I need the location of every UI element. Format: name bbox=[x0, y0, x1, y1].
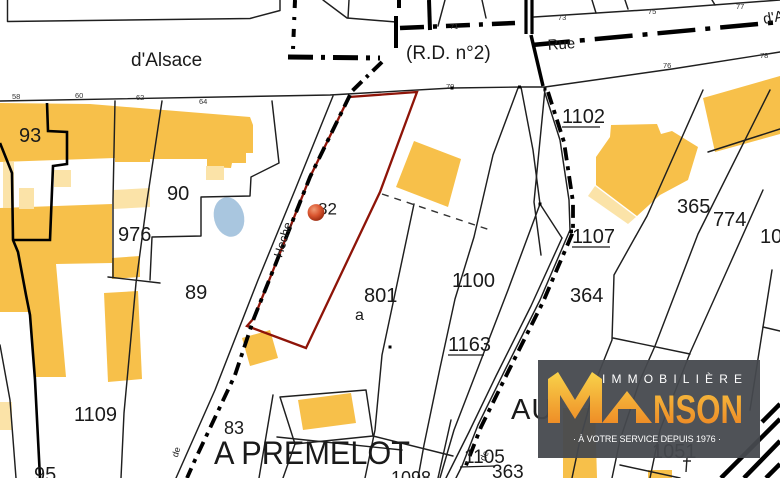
svg-text:1100: 1100 bbox=[452, 270, 495, 292]
svg-text:1107: 1107 bbox=[572, 226, 615, 248]
svg-text:· À VOTRE SERVICE DEPUIS 1976: · À VOTRE SERVICE DEPUIS 1976 · bbox=[573, 434, 721, 444]
svg-text:76: 76 bbox=[663, 61, 671, 70]
svg-text:(R.D. n°2): (R.D. n°2) bbox=[406, 43, 491, 64]
svg-text:89: 89 bbox=[185, 282, 207, 304]
svg-text:NSON: NSON bbox=[653, 388, 743, 432]
svg-text:93: 93 bbox=[19, 125, 41, 147]
svg-text:62: 62 bbox=[136, 93, 144, 102]
svg-text:a: a bbox=[355, 307, 364, 324]
svg-text:364: 364 bbox=[570, 285, 603, 307]
svg-text:95: 95 bbox=[34, 464, 56, 478]
svg-text:976: 976 bbox=[118, 224, 151, 246]
svg-text:73: 73 bbox=[558, 13, 566, 22]
svg-text:64: 64 bbox=[199, 97, 207, 106]
svg-text:60: 60 bbox=[75, 91, 83, 100]
svg-text:801: 801 bbox=[364, 285, 397, 307]
svg-text:1163: 1163 bbox=[448, 334, 491, 356]
svg-text:77: 77 bbox=[736, 2, 744, 11]
svg-text:365: 365 bbox=[677, 196, 710, 218]
svg-text:1109: 1109 bbox=[74, 404, 117, 426]
svg-text:1102: 1102 bbox=[562, 106, 605, 128]
svg-text:363: 363 bbox=[492, 462, 524, 478]
svg-text:d'Alsace: d'Alsace bbox=[131, 50, 202, 71]
svg-text:75: 75 bbox=[648, 7, 656, 16]
svg-text:Rue: Rue bbox=[547, 35, 576, 54]
svg-text:d'A: d'A bbox=[762, 8, 780, 28]
svg-text:78: 78 bbox=[760, 51, 768, 60]
svg-text:58: 58 bbox=[12, 92, 20, 101]
svg-text:1015: 1015 bbox=[760, 226, 780, 248]
svg-text:774: 774 bbox=[713, 209, 746, 231]
svg-text:71: 71 bbox=[450, 22, 458, 31]
svg-text:A PREMELOT: A PREMELOT bbox=[214, 435, 410, 471]
svg-text:90: 90 bbox=[167, 183, 189, 205]
